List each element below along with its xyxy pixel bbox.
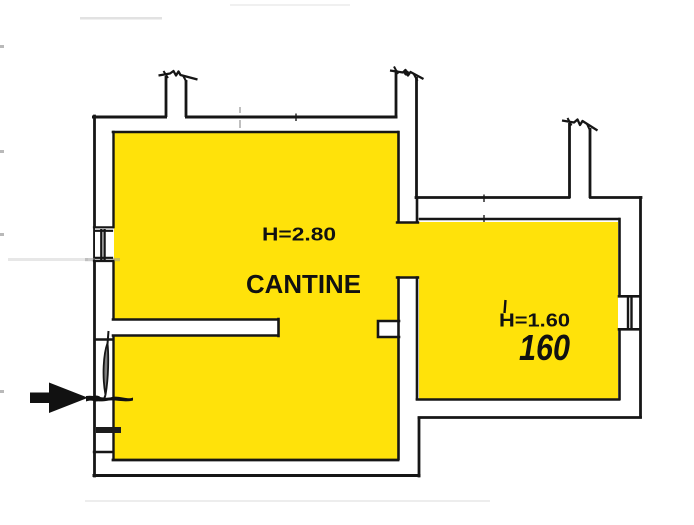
svg-text:160: 160 [519,327,570,368]
svg-text:H=2.80: H=2.80 [262,225,336,245]
svg-text:CANTINE: CANTINE [246,269,361,299]
